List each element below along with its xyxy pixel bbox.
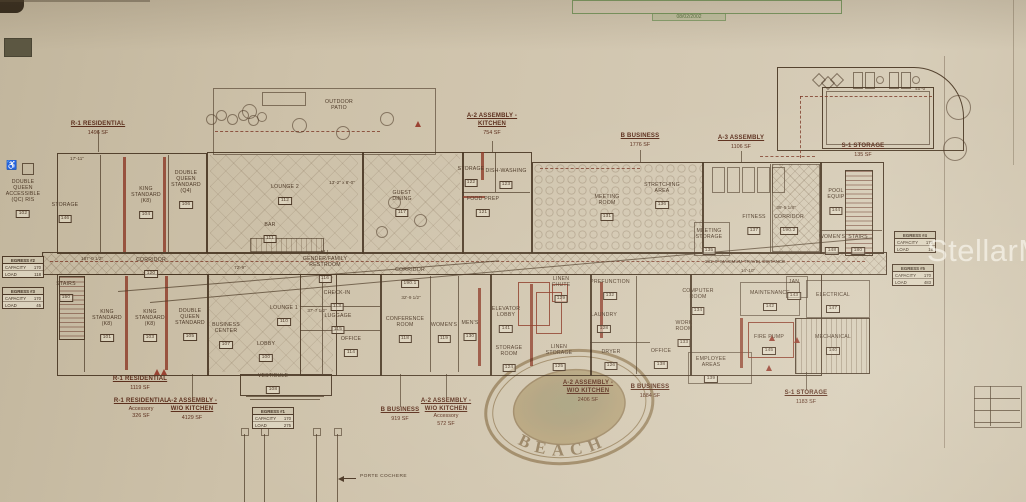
room-label: VESTIBULE108 — [258, 373, 288, 394]
fire-rated-wall — [740, 318, 743, 368]
egress-box: EGRESS #1CAPACITY170LOAD275 — [252, 407, 294, 429]
room-number: 146 — [58, 215, 72, 223]
porte-column — [241, 428, 249, 436]
pool-lounger — [865, 72, 875, 89]
interior-wall — [974, 422, 1020, 423]
fitness-equipment — [727, 167, 740, 193]
room-label: BAR111 — [264, 222, 277, 243]
dimension-note: 17'-11" — [70, 156, 84, 161]
room-number: 140 — [826, 347, 840, 355]
room-number: 141 — [499, 325, 513, 333]
interior-wall — [462, 192, 530, 193]
dimension-note: 40'-0" — [915, 86, 927, 91]
warning-triangle-icon — [766, 365, 772, 371]
leader-line — [741, 151, 742, 162]
room-label: LOUNGE 2112 — [271, 184, 299, 205]
warning-triangle-icon — [161, 369, 167, 375]
dimension-note: 32'-9 1/2" — [401, 295, 420, 300]
room-number: 130 — [463, 333, 477, 341]
zone-label: A-3 ASSEMBLY1106 SF — [718, 135, 764, 150]
room-label: OUTDOORPATIO — [325, 99, 353, 111]
dimension-note: 187'-0 1/2" — [81, 256, 103, 261]
dimension-note: 39'-5 1/8" — [776, 205, 795, 210]
floor-plan-photo: 08/02/2002 ♿ DOUBLEQUEENACCESSIBLE(QC) R… — [0, 0, 1026, 502]
room-label: FOOD PREP121 — [467, 196, 499, 217]
landscape-or-table — [876, 76, 884, 84]
room-number: 105 — [183, 333, 197, 341]
zone-label: R-1 RESIDENTIAL1119 SF — [113, 376, 167, 391]
room-label: LOUNGE 1110 — [270, 305, 298, 326]
interior-wall — [244, 434, 245, 502]
room-number: 120 — [144, 270, 158, 278]
leader-line — [400, 374, 401, 407]
leader-line — [446, 374, 447, 398]
landscape-or-table — [227, 114, 238, 125]
room-label: DOUBLEQUEENACCESSIBLE(QC) RIS102 — [6, 179, 41, 218]
storage-wall-inner — [826, 91, 930, 145]
room-label: LINENCHUTE129 — [552, 276, 571, 303]
room-number: 143 — [787, 292, 801, 300]
landscape-or-table — [943, 137, 967, 161]
warning-triangle-icon — [794, 337, 800, 343]
dimension-note: 37'-7 1/2" — [307, 308, 326, 313]
zone-label: A-2 ASSEMBLY -W/O KITCHEN4129 SF — [167, 398, 217, 421]
room-number: 148 — [825, 247, 839, 255]
leader-line — [640, 150, 641, 162]
room-label: BUSINESSCENTER107 — [212, 322, 240, 349]
room-label: COMPUTERROOM134 — [682, 288, 713, 315]
room-number: 129 — [554, 295, 568, 303]
interior-wall — [770, 164, 771, 252]
porte-cochere-label: PORTE COCHERE — [360, 474, 407, 479]
room-label: CORRIDOR190.2 — [774, 214, 804, 235]
landscape-or-table — [336, 126, 350, 140]
room-number: 150 — [59, 294, 73, 302]
zone-label: B BUSINESS1776 SF — [621, 133, 660, 148]
room-number: 135 — [702, 247, 716, 255]
fire-rated-wall — [165, 276, 168, 370]
room-label: EMPLOYEEAREAS139 — [696, 356, 726, 383]
room-label: FIRE PUMP145 — [754, 334, 784, 355]
room-label: MEETINGROOM131 — [594, 194, 619, 221]
room-number: 115 — [331, 326, 344, 334]
egress-path — [800, 96, 801, 158]
room-label: STORAGE146 — [52, 202, 79, 223]
room-number: 134 — [691, 307, 705, 315]
landscape-or-table — [380, 112, 394, 126]
room-label: DISH-WASHING123 — [485, 168, 526, 189]
room-label: LAUNDRY128 — [591, 312, 617, 333]
room-label: STORAGEROOM124 — [496, 345, 523, 372]
interior-wall — [990, 386, 991, 426]
room-number: 142 — [763, 303, 777, 311]
pool-lounger — [901, 72, 911, 89]
interior-wall — [168, 155, 169, 252]
room-number: 139 — [704, 375, 718, 383]
room-number: 100 — [259, 354, 273, 362]
sofa — [262, 92, 306, 106]
landscape-or-table — [414, 214, 427, 227]
room-label: LINENSTORAGE125 — [546, 344, 573, 371]
room-label: STAIRS180 — [848, 234, 868, 255]
room-number: 101 — [100, 334, 114, 342]
room-label: GUESTDINING117 — [392, 190, 411, 217]
room-label: KINGSTANDARD(K8)104 — [131, 186, 161, 219]
sheet-edge — [0, 0, 150, 2]
room-number: 110 — [277, 318, 290, 326]
fitness-equipment — [772, 167, 785, 193]
zone-label: R-1 RESIDENTIALAccessory326 SF — [114, 398, 168, 419]
room-label: CHECK-IN113 — [324, 290, 351, 311]
zone-label: A-2 ASSEMBLY -KITCHEN754 SF — [467, 113, 517, 136]
room-number: 144 — [829, 207, 843, 215]
interior-wall — [974, 410, 1020, 411]
interior-wall — [974, 398, 1020, 399]
room-number: 113 — [330, 303, 343, 311]
room-number: 111 — [264, 235, 277, 243]
dimension-note: 14'-10" — [741, 268, 755, 273]
egress-path — [760, 156, 815, 157]
room-label: LOBBY100 — [257, 341, 275, 362]
room-label: CORRIDOR120 — [136, 257, 166, 278]
zone-label: B BUSINESS1884 SF — [631, 384, 670, 399]
room-number: 122 — [464, 179, 478, 187]
landscape-or-table — [257, 112, 267, 122]
interior-wall — [84, 276, 85, 372]
landscape-or-table — [376, 226, 388, 238]
room-number: 107 — [219, 341, 233, 349]
room-label: PREFUNCTION132 — [590, 279, 630, 300]
warning-triangle-icon — [154, 369, 160, 375]
photo-artifact — [4, 38, 32, 57]
interior-wall — [264, 434, 265, 502]
egress-path — [540, 168, 640, 169]
zone-label: S-1 STORAGE135 SF — [842, 143, 885, 158]
interior-wall — [820, 230, 882, 231]
sheet-fold — [1013, 0, 1014, 165]
zone-label: A-2 ASSEMBLY -W/O KITCHENAccessory572 SF — [421, 398, 471, 427]
room-label: POOLEQUIP144 — [827, 188, 844, 215]
room-number: 119 — [437, 335, 450, 343]
room-number: 126 — [604, 362, 618, 370]
room-label: WOMEN'S148 — [819, 234, 845, 255]
dimension-note: 13'-2" x 8'-0" — [329, 180, 355, 185]
room-label: FITNESS137 — [742, 214, 765, 235]
room-number: 106 — [179, 201, 193, 209]
room-number: 108 — [266, 386, 280, 394]
room-label: OFFICE138 — [651, 348, 671, 369]
room-label: OFFICE114 — [341, 336, 361, 357]
room-number: 125 — [552, 363, 566, 371]
room-label: DOUBLEQUEENSTANDARD(Q4)106 — [171, 170, 201, 209]
room-label: STAIRS150 — [56, 281, 76, 302]
pool-lounger — [889, 72, 899, 89]
room-number: 114 — [344, 349, 357, 357]
room-label: MECHANICAL140 — [815, 334, 851, 355]
egress-box: EGRESS #2CAPACITY170LOAD118 — [2, 256, 44, 278]
room-number: 190.2 — [780, 227, 798, 235]
interior-wall — [250, 399, 320, 400]
room-number: 145 — [762, 347, 776, 355]
stellar-mls-watermark: StellarMLS — [927, 233, 1026, 269]
room-number: 132 — [603, 292, 617, 300]
room-label: ELEVATORLOBBY141 — [492, 306, 520, 333]
leader-line — [806, 372, 807, 390]
room-number: 121 — [476, 209, 490, 217]
room-label: STRETCHINGAREA136 — [644, 182, 680, 209]
room-label: MEN'S130 — [462, 320, 479, 341]
fire-rated-wall — [163, 157, 166, 252]
room-number: 102 — [16, 210, 30, 218]
zone-label: R-1 RESIDENTIAL1496 SF — [71, 121, 125, 136]
landscape-or-table — [292, 118, 307, 133]
room-label: MAINTENANCE142 — [750, 290, 790, 311]
landscape-or-table — [912, 76, 920, 84]
wheelchair-icon: ♿ — [6, 160, 17, 171]
landscape-or-table — [216, 110, 227, 121]
room-number: 123 — [499, 181, 513, 189]
porte-column — [261, 428, 269, 436]
porte-cochere-arrow — [341, 478, 356, 479]
room-label: CONFERENCEROOM118 — [386, 316, 424, 343]
room-number: 112 — [278, 197, 291, 205]
egress-path — [800, 96, 932, 97]
room-number: 133 — [677, 339, 691, 347]
room-label: CORRIDOR190.1 — [395, 267, 425, 288]
leader-line — [492, 141, 493, 152]
room-label: ALLGENDER/FAMILYRESTROOM116 — [303, 250, 347, 283]
room-label: ELECTRICAL147 — [816, 292, 850, 313]
zone-label: B BUSINESS919 SF — [381, 407, 420, 422]
room-label: STORAGE122 — [458, 166, 485, 187]
dimension-note: 181'-6" MAXIMUM TRAVEL DISTANCE — [705, 259, 785, 264]
title-block — [572, 0, 842, 14]
room-number: 190.1 — [401, 280, 419, 288]
room-label: MEETINGSTORAGE135 — [696, 228, 723, 255]
room-label: WORKROOM133 — [676, 320, 693, 347]
pool-lounger — [853, 72, 863, 89]
fitness-equipment — [742, 167, 755, 193]
zone-label: A-2 ASSEMBLY -W/O KITCHEN2406 SF — [563, 380, 613, 403]
room-label: KINGSTANDARD(K8)101 — [92, 309, 122, 342]
accessible-sign-icon — [22, 163, 34, 175]
landscape-or-table — [946, 95, 971, 120]
interior-wall — [246, 396, 324, 397]
room-label: DOUBLEQUEENSTANDARD105 — [175, 308, 205, 341]
room-number: 137 — [747, 227, 761, 235]
egress-box: EGRESS #3CAPACITY170LOAD45 — [2, 287, 44, 309]
room-number: 116 — [318, 275, 331, 283]
room-number: 104 — [139, 211, 153, 219]
room-number: 118 — [398, 335, 411, 343]
room-number: 131 — [600, 213, 614, 221]
interior-wall — [100, 155, 101, 252]
interior-wall — [337, 434, 338, 502]
room-number: 138 — [654, 361, 668, 369]
room-label: JAN143 — [787, 279, 801, 300]
fitness-equipment — [757, 167, 770, 193]
interior-wall — [316, 434, 317, 502]
porte-column — [334, 428, 342, 436]
title-block-date: 08/02/2002 — [652, 13, 726, 21]
room-label: KINGSTANDARD(K8)103 — [135, 309, 165, 342]
room-label: LUGGAGE115 — [324, 313, 351, 334]
dimension-note: 72'-9" — [234, 265, 246, 270]
room-number: 117 — [395, 209, 408, 217]
room-label: WOMEN'S119 — [431, 322, 457, 343]
fitness-equipment — [712, 167, 725, 193]
porte-column — [313, 428, 321, 436]
room-number: 124 — [502, 364, 516, 372]
room-label: DRYER126 — [601, 349, 620, 370]
interior-wall — [458, 276, 459, 372]
zone-label: S-1 STORAGE1183 SF — [785, 390, 828, 405]
room-number: 180 — [851, 247, 865, 255]
room-number: 136 — [655, 201, 669, 209]
leader-line — [192, 374, 193, 398]
room-number: 147 — [826, 305, 840, 313]
room-number: 128 — [597, 325, 611, 333]
room-number: 103 — [143, 334, 157, 342]
warning-triangle-icon — [415, 121, 421, 127]
fire-rated-wall — [123, 157, 126, 252]
